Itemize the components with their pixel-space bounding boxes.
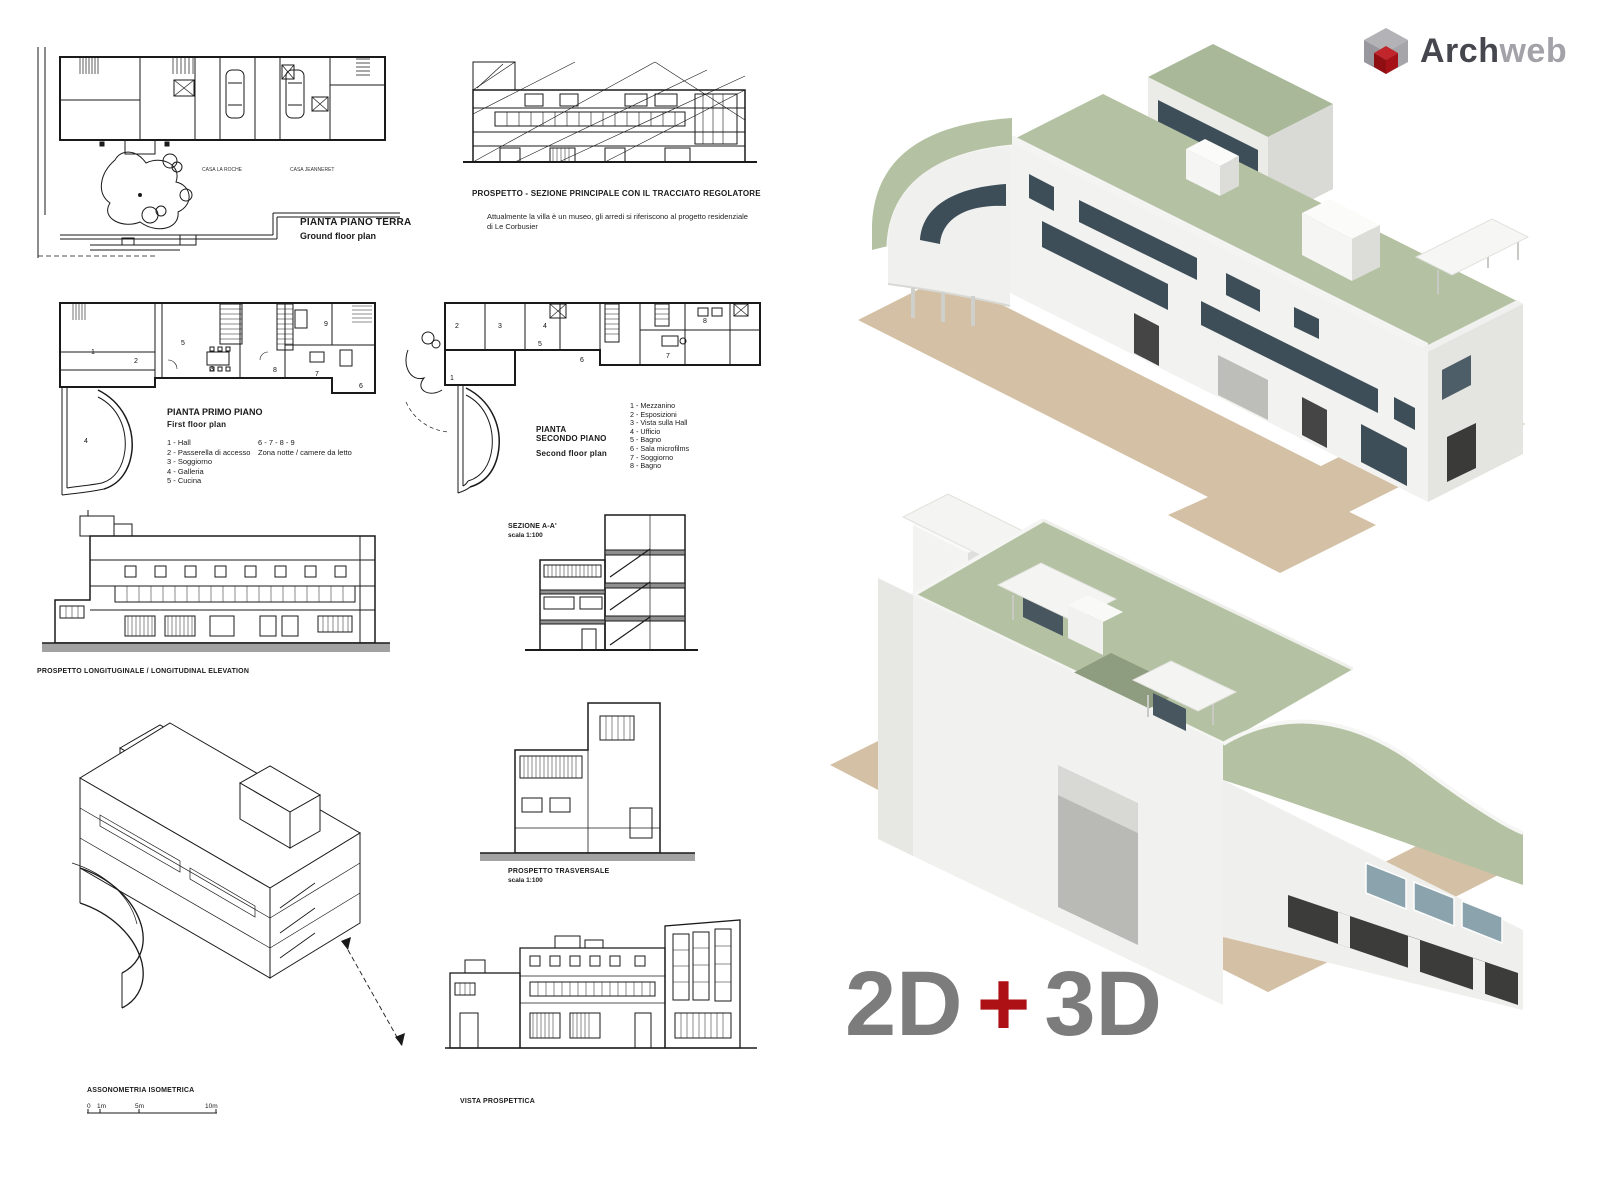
room-number: 3: [210, 366, 214, 373]
second-floor-title-block: PIANTA SECONDO PIANO Second floor plan: [536, 425, 607, 458]
first-floor-legend: 1 - Hall 2 - Passerella di accesso 3 - S…: [167, 438, 250, 486]
garden-path: [101, 152, 189, 229]
render-3d-rear: [818, 465, 1545, 1013]
room-number: 9: [324, 321, 328, 328]
second-floor-subtitle: Second floor plan: [536, 449, 607, 458]
axonometric-scalebar: 0 1m 5m 10m: [87, 1100, 237, 1118]
scale-tick-label: 10m: [205, 1103, 218, 1110]
stair-hatch: [173, 58, 193, 74]
first-floor-subtitle: First floor plan: [167, 420, 226, 429]
room-number: 8: [273, 367, 277, 374]
car-icon: [286, 70, 304, 118]
legend-item: 4 - Galleria: [167, 467, 250, 477]
room-number: 3: [498, 323, 502, 330]
section-aa-drawing: [470, 505, 710, 665]
architecture-sheet: CASA LA ROCHE CASA JEANNERET PIANTA PIAN…: [0, 0, 1600, 1200]
section-aa-scale: scala 1:100: [508, 532, 543, 539]
second-floor-legend: 1 - Mezzanino 2 - Esposizioni 3 - Vista …: [630, 402, 689, 471]
transverse-elevation-title: PROSPETTO TRASVERSALE: [508, 868, 609, 875]
ground-floor-subtitle: Ground floor plan: [300, 231, 411, 241]
stair-hatch: [80, 58, 98, 74]
archweb-logo-icon: [1360, 26, 1412, 76]
longitudinal-elevation-drawing: [30, 508, 395, 668]
legend-item: Zona notte / camere da letto: [258, 448, 352, 458]
legend-item: 2 - Passerella di accesso: [167, 448, 250, 458]
room-number: 7: [666, 353, 670, 360]
main-elevation-note-1: Attualmente la villa è un museo, gli arr…: [487, 212, 748, 221]
second-floor-plan-drawing: 1 2 3 4 5 6 7 8: [400, 290, 780, 505]
transverse-elevation-drawing: [470, 688, 710, 878]
first-floor-title: PIANTA PRIMO PIANO: [167, 407, 263, 417]
stair-hatch: [73, 304, 85, 320]
house-label-left: CASA LA ROCHE: [202, 167, 243, 173]
archweb-logo: Archweb: [1360, 26, 1567, 76]
perspective-drawing: [435, 898, 765, 1073]
logo-part-web: web: [1499, 32, 1567, 70]
axonometric-drawing: [30, 688, 430, 1088]
room-number: 8: [703, 318, 707, 325]
legend-item: 5 - Cucina: [167, 476, 250, 486]
banner-2d: 2D: [845, 953, 963, 1055]
plus-icon: +: [963, 953, 1045, 1055]
legend-item: 1 - Hall: [167, 438, 250, 448]
garden-path: [406, 350, 442, 393]
scale-tick-label: 1m: [97, 1103, 106, 1110]
scale-tick-label: 5m: [135, 1103, 144, 1110]
perspective-title: VISTA PROSPETTICA: [460, 1098, 535, 1105]
first-floor-legend-right: 6 - 7 - 8 - 9 Zona notte / camere da let…: [258, 438, 352, 457]
room-number: 2: [455, 323, 459, 330]
banner-2d-3d: 2D+3D: [845, 958, 1162, 1050]
legend-item: 8 - Bagno: [630, 462, 689, 471]
stair-hatch: [352, 306, 372, 322]
room-number: 6: [359, 383, 363, 390]
second-floor-title-1: PIANTA: [536, 425, 607, 434]
axonometric-title: ASSONOMETRIA ISOMETRICA: [87, 1087, 194, 1094]
room-number: 7: [315, 371, 319, 378]
ground-floor-title: PIANTA PIANO TERRA: [300, 217, 411, 228]
scale-tick-label: 0: [87, 1103, 91, 1110]
room-number: 6: [580, 357, 584, 364]
archweb-logo-text: Archweb: [1420, 34, 1567, 68]
room-number: 5: [181, 340, 185, 347]
house-label-right: CASA JEANNERET: [290, 167, 334, 173]
room-number: 4: [543, 323, 547, 330]
room-number: 1: [450, 375, 454, 382]
main-elevation-drawing: [455, 50, 765, 185]
room-number: 4: [84, 438, 88, 445]
legend-item: 6 - 7 - 8 - 9: [258, 438, 352, 448]
ground-floor-title-block: PIANTA PIANO TERRA Ground floor plan: [300, 217, 411, 241]
second-floor-title-2: SECONDO PIANO: [536, 434, 607, 443]
room-number: 5: [538, 341, 542, 348]
room-number: 2: [134, 358, 138, 365]
longitudinal-elevation-title: PROSPETTO LONGITUGINALE / LONGITUDINAL E…: [37, 668, 249, 675]
transverse-elevation-scale: scala 1:100: [508, 877, 543, 884]
section-aa-title: SEZIONE A-A': [508, 523, 557, 530]
room-number: 1: [91, 349, 95, 356]
stair-hatch: [356, 59, 370, 75]
car-icon: [226, 70, 244, 118]
logo-part-arch: Arch: [1420, 32, 1499, 70]
banner-3d: 3D: [1044, 953, 1162, 1055]
tree-icon: [142, 154, 192, 223]
legend-item: 3 - Soggiorno: [167, 457, 250, 467]
main-elevation-note-2: di Le Corbusier: [487, 222, 538, 231]
main-elevation-title: PROSPETTO - SEZIONE PRINCIPALE CON IL TR…: [472, 189, 761, 198]
